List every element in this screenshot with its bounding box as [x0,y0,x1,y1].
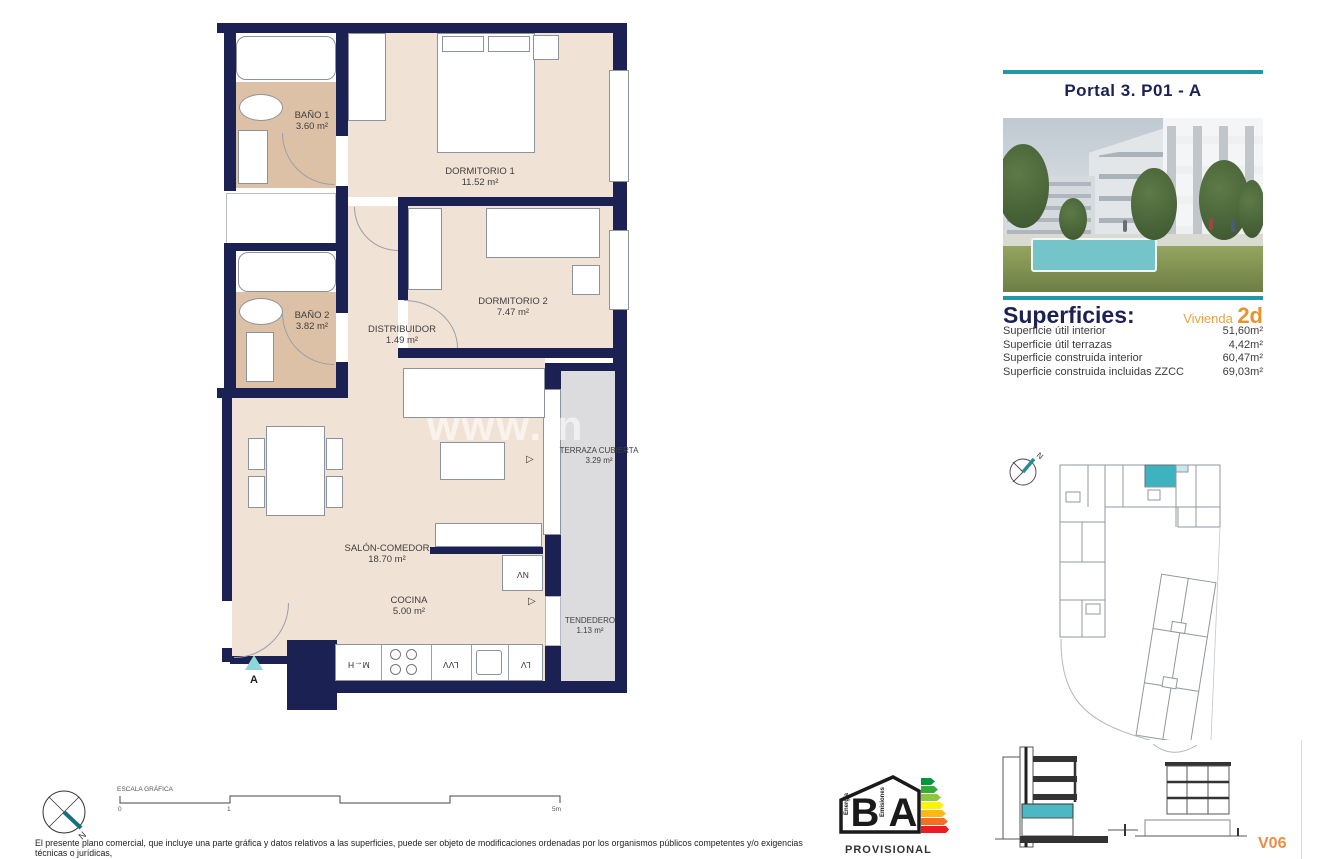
plan-sheet: NV M←H LVV LV ▷ ▷ BAÑO 13 [0,0,1320,859]
counter-divider [471,645,472,680]
single-bed [486,208,600,258]
disclaimer-text: El presente plano comercial, que incluye… [35,838,835,859]
building-render [1003,118,1263,292]
bathtub [236,36,336,80]
bathtub [238,252,336,292]
scale-bar: ESCALA GRÁFICA 0 1 5m [115,783,565,813]
page-title: Portal 3. P01 - A [1003,81,1263,101]
render-person [1209,218,1213,230]
wall-segment [217,388,348,398]
render-person [1231,220,1235,232]
key-plan-highlight-unit [1145,465,1176,487]
pillow [488,36,530,52]
version-label: V06 [1258,835,1286,853]
hob-burner [406,664,417,675]
energy-certificate-logo: B A Energía Emisiones [833,770,949,842]
render-tree [1131,168,1177,240]
entrance-marker-icon [245,655,263,670]
wall-segment [398,197,627,206]
wall-segment [398,206,408,300]
chair [326,438,343,470]
sink-vanity [246,332,274,382]
scale-bar-line [120,796,560,803]
wall-segment [224,23,236,191]
wall-segment [336,186,348,313]
window-dormitorio-1 [609,70,629,182]
energy-caption-right: Emisiones [880,786,886,817]
wall-segment [545,371,561,391]
wall-segment [222,398,232,601]
section-right [1135,762,1247,836]
slide-marker: ▷ [528,596,536,607]
room-label-bano-1: BAÑO 13.60 m² [272,110,352,132]
nightstand [533,35,559,60]
wall-segment [335,681,627,693]
window-dormitorio-2 [609,230,629,310]
wardrobe [348,33,386,121]
light-shaft [226,193,336,245]
energy-arrows [921,778,949,833]
room-label-bano-2: BAÑO 23.82 m² [272,310,352,332]
scan-artifact-line [1301,740,1302,859]
fridge-label: NV [517,557,529,593]
chair [326,476,343,508]
scale-tick: 1 [227,806,231,813]
oven-microwave: M←H [336,645,381,680]
superficies-table: Superficie útil interior51,60m² Superfic… [1003,325,1263,379]
render-person [1123,220,1127,232]
fridge: NV [502,555,543,591]
key-plan-building [1136,574,1216,740]
scale-tick: 5m [552,806,561,813]
render-pool [1031,238,1157,272]
wall-segment [545,646,561,693]
sofa [403,368,545,418]
superficies-row: Superficie construida interior60,47m² [1003,352,1263,366]
superficies-row: Superficie construida incluidas ZZCC69,0… [1003,366,1263,380]
key-plan: N [998,432,1304,740]
provisional-label: PROVISIONAL [845,844,932,856]
scale-bar-title: ESCALA GRÁFICA [117,784,174,793]
room-label-tendedero: TENDEDERO1.13 m² [542,616,638,636]
render-tree [1239,180,1263,238]
key-plan-compass [1010,459,1036,485]
kitchen-counter: M←H LVV LV [335,644,543,681]
floor-plan: NV M←H LVV LV ▷ ▷ BAÑO 13 [212,18,687,710]
room-label-salon: SALÓN-COMEDOR18.70 m² [307,543,467,565]
wall-segment [224,248,236,398]
energy-letter-b: B [851,791,880,835]
counter-divider [381,645,382,680]
room-label-distribuidor: DISTRIBUIDOR1.49 m² [342,324,462,346]
washer: LV [508,645,544,680]
dishwasher: LVV [431,645,471,680]
wall-segment [224,243,336,251]
hob-burner [406,649,417,660]
render-tree [1059,198,1087,240]
hob-burner [390,664,401,675]
entrance-marker-label: A [250,674,258,686]
unit-label: Vivienda [1183,311,1233,326]
compass: N [36,782,98,844]
teal-divider [1003,296,1263,300]
teal-divider [1003,70,1263,74]
dining-table [266,426,325,516]
room-label-cocina: COCINA5.00 m² [364,595,454,617]
wardrobe [408,208,442,290]
coffee-table [440,442,505,480]
energy-letter-a: A [889,791,918,835]
room-label-terraza: TERRAZA CUBIERTA3.29 m² [544,446,654,466]
room-label-dormitorio-1: DORMITORIO 111.52 m² [410,166,550,188]
hob-burner [390,649,401,660]
washer-label: LV [521,647,531,682]
wall-entrance-block [287,640,337,710]
wall-segment [398,348,627,358]
oven-microwave-label: M←H [348,647,370,682]
room-label-dormitorio-2: DORMITORIO 27.47 m² [443,296,583,318]
section-highlight-floor [1022,804,1073,818]
chair [248,476,265,508]
key-plan-boundary [1061,639,1150,740]
room-terraza-tendedero [561,371,615,683]
kitchen-sink [476,650,502,675]
pillow [442,36,484,52]
key-plan-boundary [1211,527,1220,740]
key-plan-north-label: N [1035,451,1045,462]
sink-vanity [238,130,268,184]
wall-segment [545,534,561,596]
chair [248,438,265,470]
slide-marker: ▷ [526,454,534,465]
nightstand [572,265,600,295]
energy-caption-left: Energía [844,792,850,815]
superficies-row: Superficie útil terrazas4,42m² [1003,339,1263,353]
dishwasher-label: LVV [443,647,458,682]
compass-needle [64,812,81,828]
scale-tick: 0 [118,806,122,813]
wall-segment [217,23,627,33]
wall-segment [615,363,627,693]
superficies-row: Superficie útil interior51,60m² [1003,325,1263,339]
